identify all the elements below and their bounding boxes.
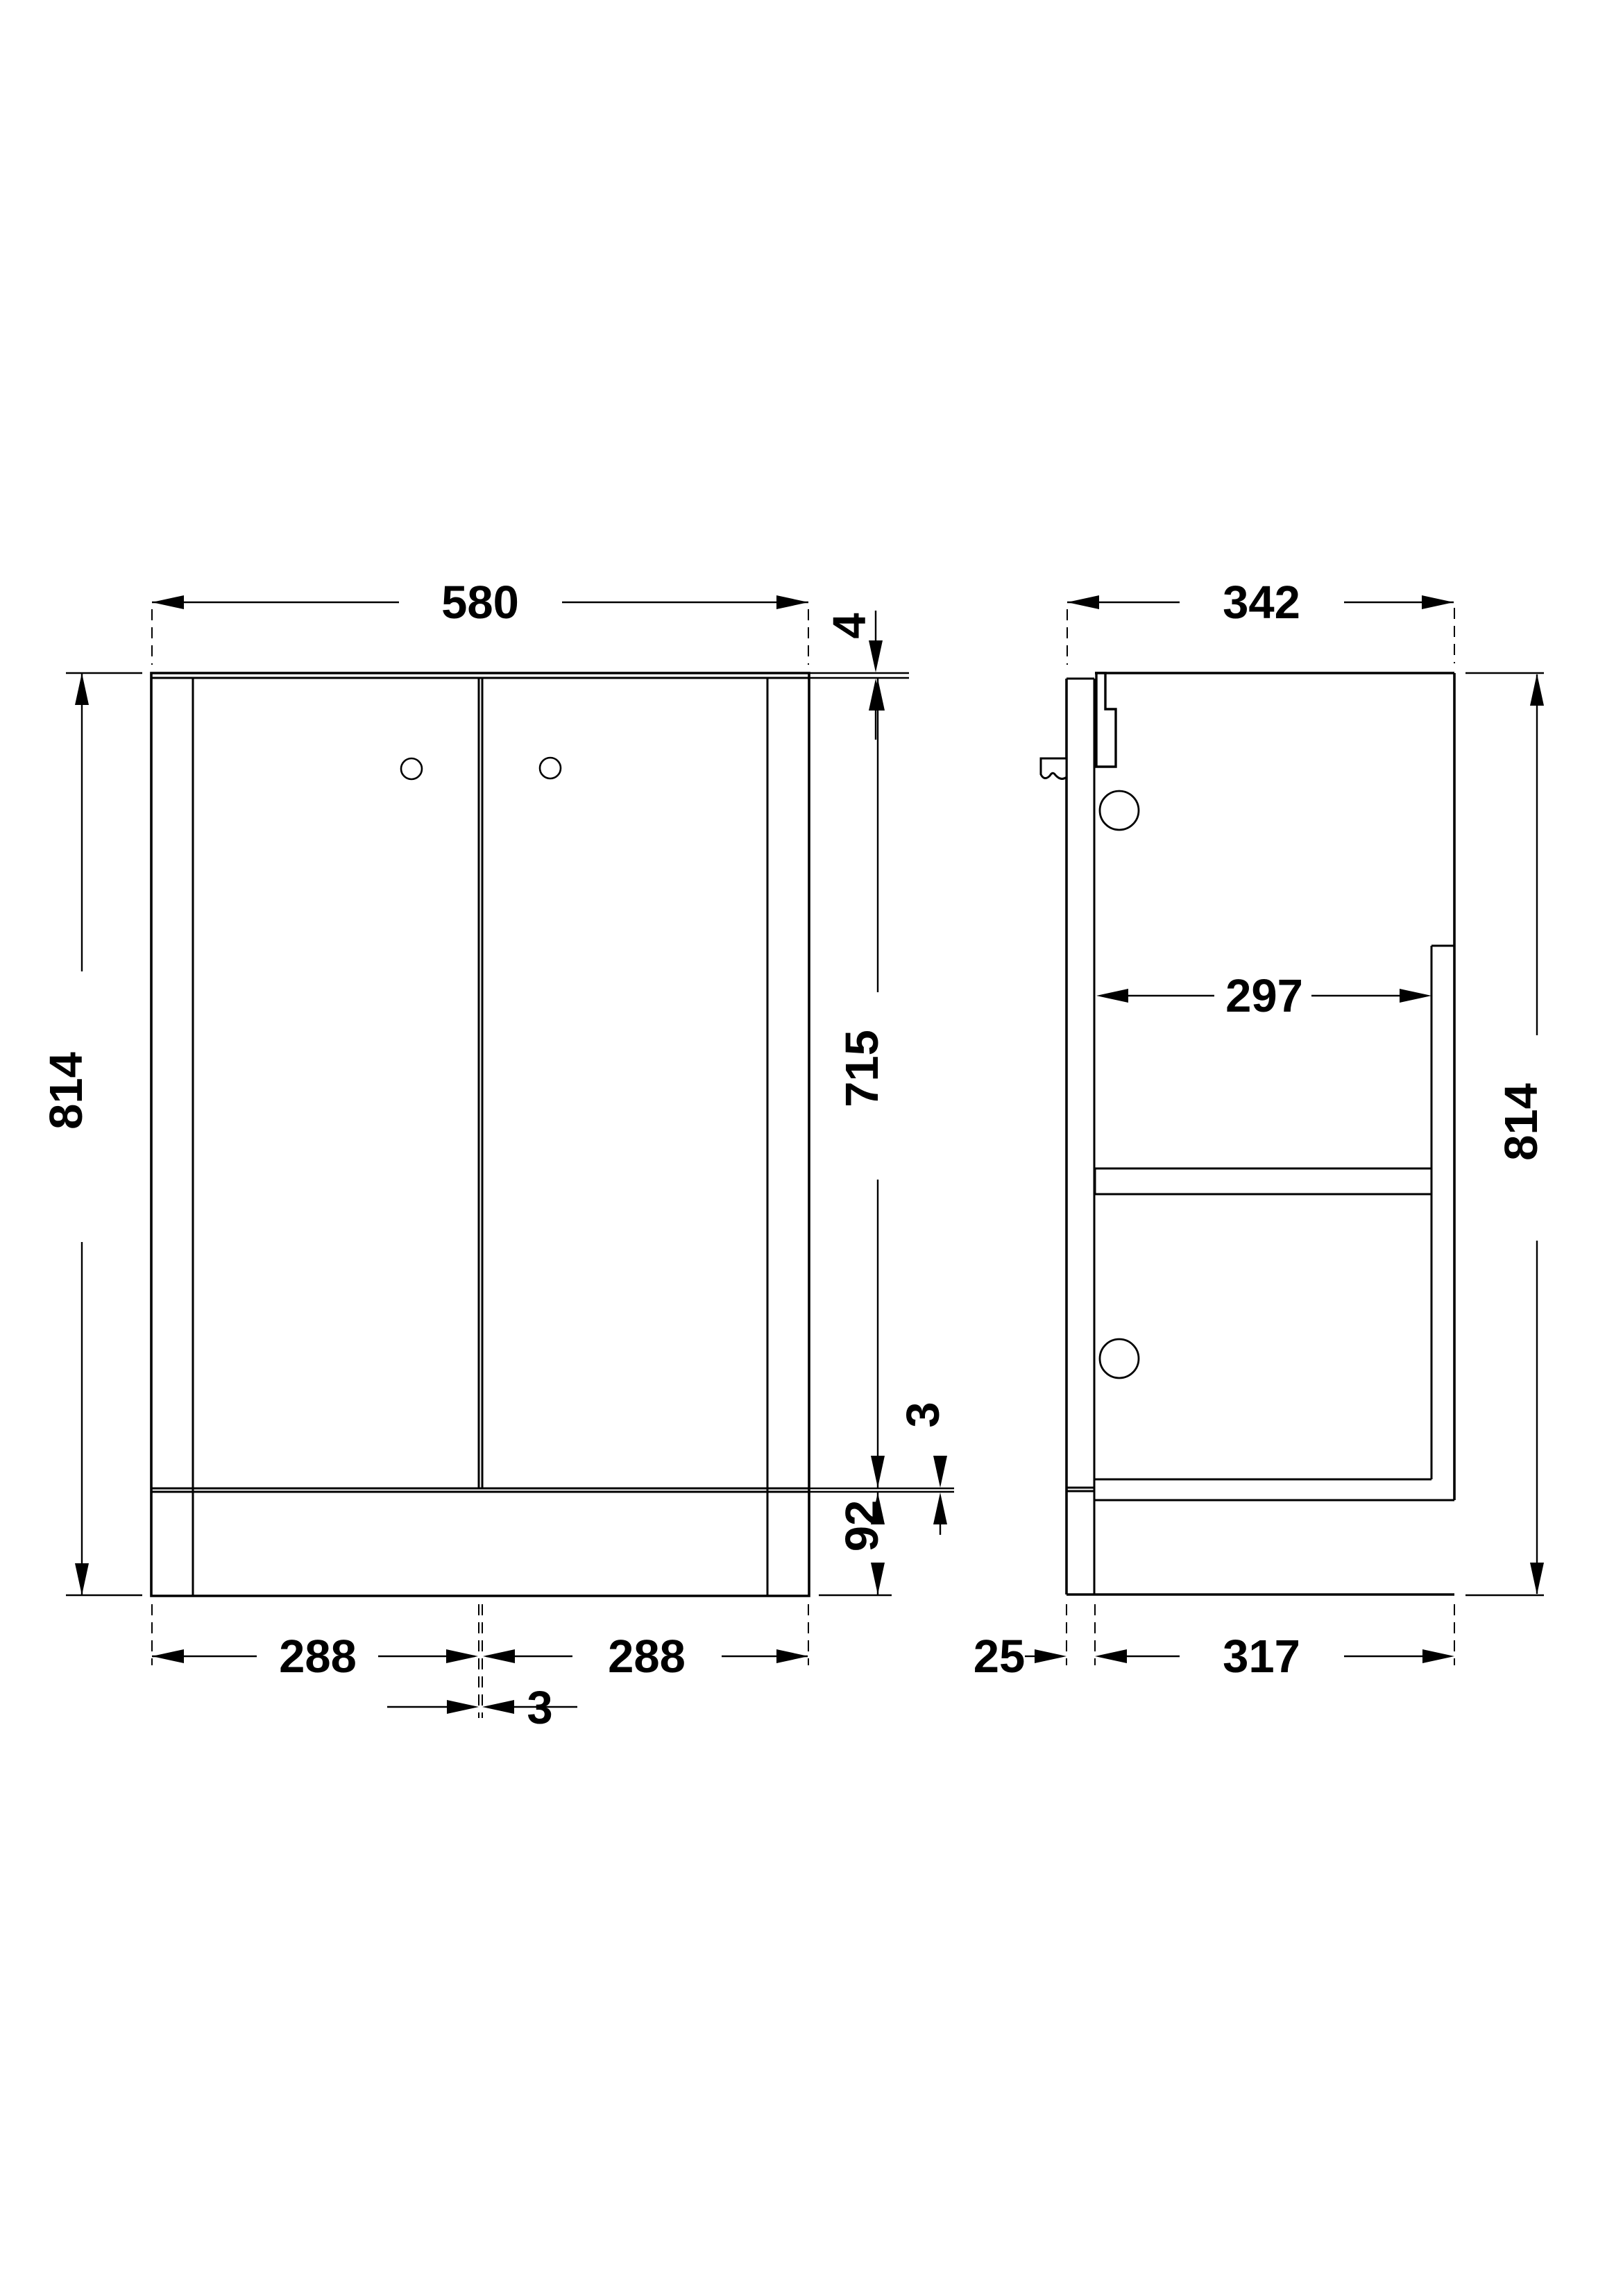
top-hinge-cup	[1100, 791, 1139, 830]
dimension-25-front-offset: 25	[974, 1604, 1095, 1683]
dimension-317-carcass-depth: 317	[1095, 1604, 1454, 1683]
left-door-handle-hole	[401, 758, 422, 779]
side-door-bottom	[1067, 1488, 1094, 1491]
dimension-4-top-panel: 4	[809, 611, 909, 740]
dim-label-715: 715	[836, 1030, 888, 1107]
dim-label-297: 297	[1225, 970, 1303, 1022]
side-view	[1041, 673, 1454, 1595]
dimension-3-centre-gap: 3	[387, 1682, 577, 1734]
dim-label-317: 317	[1223, 1631, 1300, 1683]
right-door-handle-hole	[540, 758, 561, 779]
front-view	[151, 673, 809, 1596]
front-door-gap	[479, 678, 482, 1488]
dimension-715-door-height: 715	[836, 679, 888, 1488]
dim-label-25: 25	[974, 1631, 1026, 1683]
side-bottom-panel	[1095, 1479, 1454, 1500]
side-back-panel	[1431, 946, 1454, 1479]
front-door-bottom	[151, 1488, 809, 1492]
dimension-288-right-door: 288	[483, 1631, 808, 1683]
front-outline	[151, 673, 809, 1596]
dim-label-4: 4	[824, 613, 876, 638]
dim-label-288-left: 288	[279, 1631, 357, 1683]
side-top-rail-bracket	[1096, 673, 1116, 767]
dimension-814-left-height: 814	[40, 673, 142, 1595]
dim-label-342: 342	[1223, 577, 1300, 629]
dimension-342-depth: 342	[1067, 577, 1454, 665]
dim-label-92: 92	[836, 1500, 888, 1552]
dimension-580-width: 580	[152, 577, 808, 665]
dim-label-814-right: 814	[1495, 1083, 1547, 1161]
dimension-92-plinth: 92	[819, 1492, 892, 1595]
side-handle-profile	[1041, 758, 1067, 779]
side-shelf	[1095, 1168, 1431, 1194]
drawing-canvas: 580 4 814 715 3 92	[0, 0, 1623, 2296]
dim-label-288-right: 288	[608, 1631, 686, 1683]
dimension-297-internal-depth: 297	[1096, 970, 1431, 1022]
dimension-814-right-height: 814	[1465, 673, 1547, 1595]
dimension-288-left-door: 288	[152, 1604, 808, 1718]
dim-label-814-left: 814	[40, 1052, 92, 1130]
dim-label-3-bottom: 3	[527, 1682, 552, 1734]
dim-label-580: 580	[441, 577, 519, 629]
bottom-hinge-cup	[1100, 1339, 1139, 1378]
dim-label-3-right: 3	[897, 1402, 949, 1427]
